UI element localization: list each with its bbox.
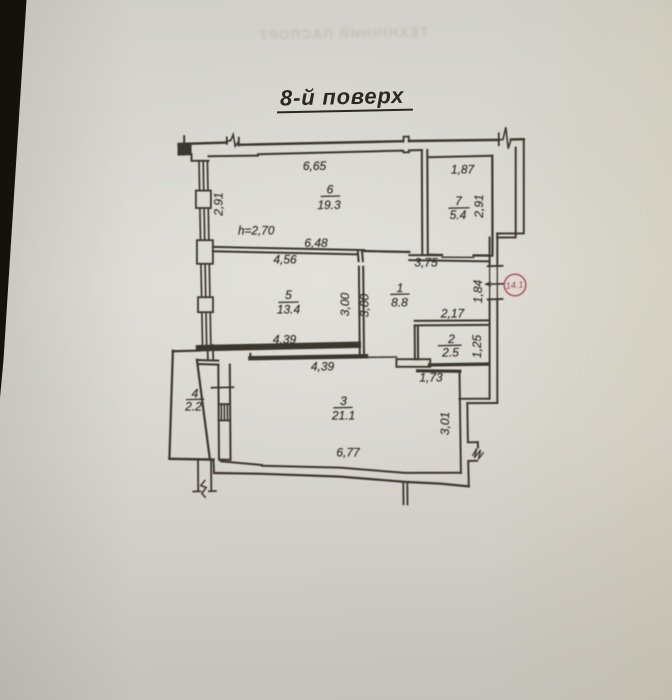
svg-text:3: 3 (340, 394, 347, 408)
svg-text:8.8: 8.8 (391, 296, 408, 310)
svg-text:6: 6 (327, 183, 334, 197)
svg-text:4: 4 (192, 386, 199, 400)
svg-text:1: 1 (397, 281, 404, 295)
svg-text:6,77: 6,77 (336, 446, 361, 460)
svg-text:2,91: 2,91 (212, 192, 226, 216)
svg-text:1,84: 1,84 (471, 279, 485, 303)
svg-text:2.2: 2.2 (184, 400, 202, 414)
svg-text:21.1: 21.1 (331, 408, 355, 422)
svg-text:5.4: 5.4 (450, 208, 467, 222)
svg-text:3,01: 3,01 (438, 412, 452, 435)
svg-text:6,48: 6,48 (304, 236, 328, 250)
svg-text:19.3: 19.3 (317, 198, 341, 212)
svg-text:7: 7 (455, 194, 463, 208)
svg-text:4,39: 4,39 (273, 333, 297, 347)
svg-text:4,56: 4,56 (273, 253, 297, 267)
svg-text:1,87: 1,87 (451, 162, 476, 176)
svg-text:13.4: 13.4 (277, 302, 301, 316)
svg-text:2.5: 2.5 (441, 345, 459, 359)
svg-text:2,91: 2,91 (472, 194, 486, 218)
svg-text:6,65: 6,65 (303, 159, 327, 173)
svg-text:2: 2 (447, 332, 455, 346)
svg-text:1,73: 1,73 (419, 371, 443, 385)
svg-text:5: 5 (285, 288, 292, 302)
svg-text:2,17: 2,17 (440, 307, 466, 321)
svg-text:1,25: 1,25 (470, 334, 484, 358)
svg-text:14.1: 14.1 (505, 279, 524, 291)
svg-text:3,75: 3,75 (414, 256, 438, 270)
svg-text:3,00: 3,00 (358, 293, 372, 317)
svg-text:h=2,70: h=2,70 (238, 224, 275, 238)
svg-text:4,39: 4,39 (311, 360, 335, 374)
svg-text:3,00: 3,00 (338, 292, 352, 316)
